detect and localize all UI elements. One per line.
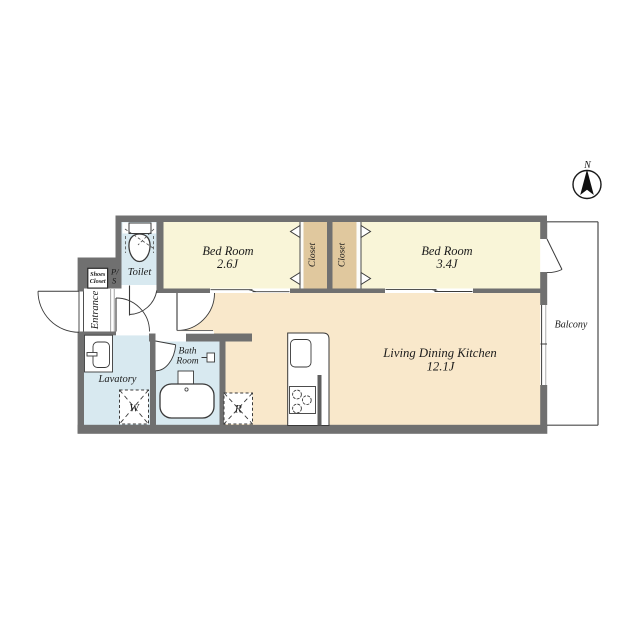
svg-text:Bed Room: Bed Room [202,244,253,258]
svg-text:Living Dining Kitchen: Living Dining Kitchen [382,346,496,360]
svg-text:3.4J: 3.4J [436,257,458,271]
svg-text:Room: Room [175,357,198,367]
svg-text:W: W [129,403,140,415]
svg-text:Entrance: Entrance [90,290,101,330]
svg-text:Toilet: Toilet [128,267,153,278]
svg-text:2.6J: 2.6J [217,257,238,271]
svg-text:Bath: Bath [179,347,197,357]
svg-text:Closet: Closet [338,243,348,268]
svg-text:R: R [234,404,242,416]
svg-text:12.1J: 12.1J [427,360,456,374]
svg-text:Balcony: Balcony [555,320,588,331]
svg-text:Closet: Closet [90,278,106,285]
svg-text:Lavatory: Lavatory [98,374,137,385]
svg-text:Closet: Closet [308,243,318,268]
svg-text:Bed Room: Bed Room [421,244,472,258]
svg-text:N: N [583,160,592,171]
